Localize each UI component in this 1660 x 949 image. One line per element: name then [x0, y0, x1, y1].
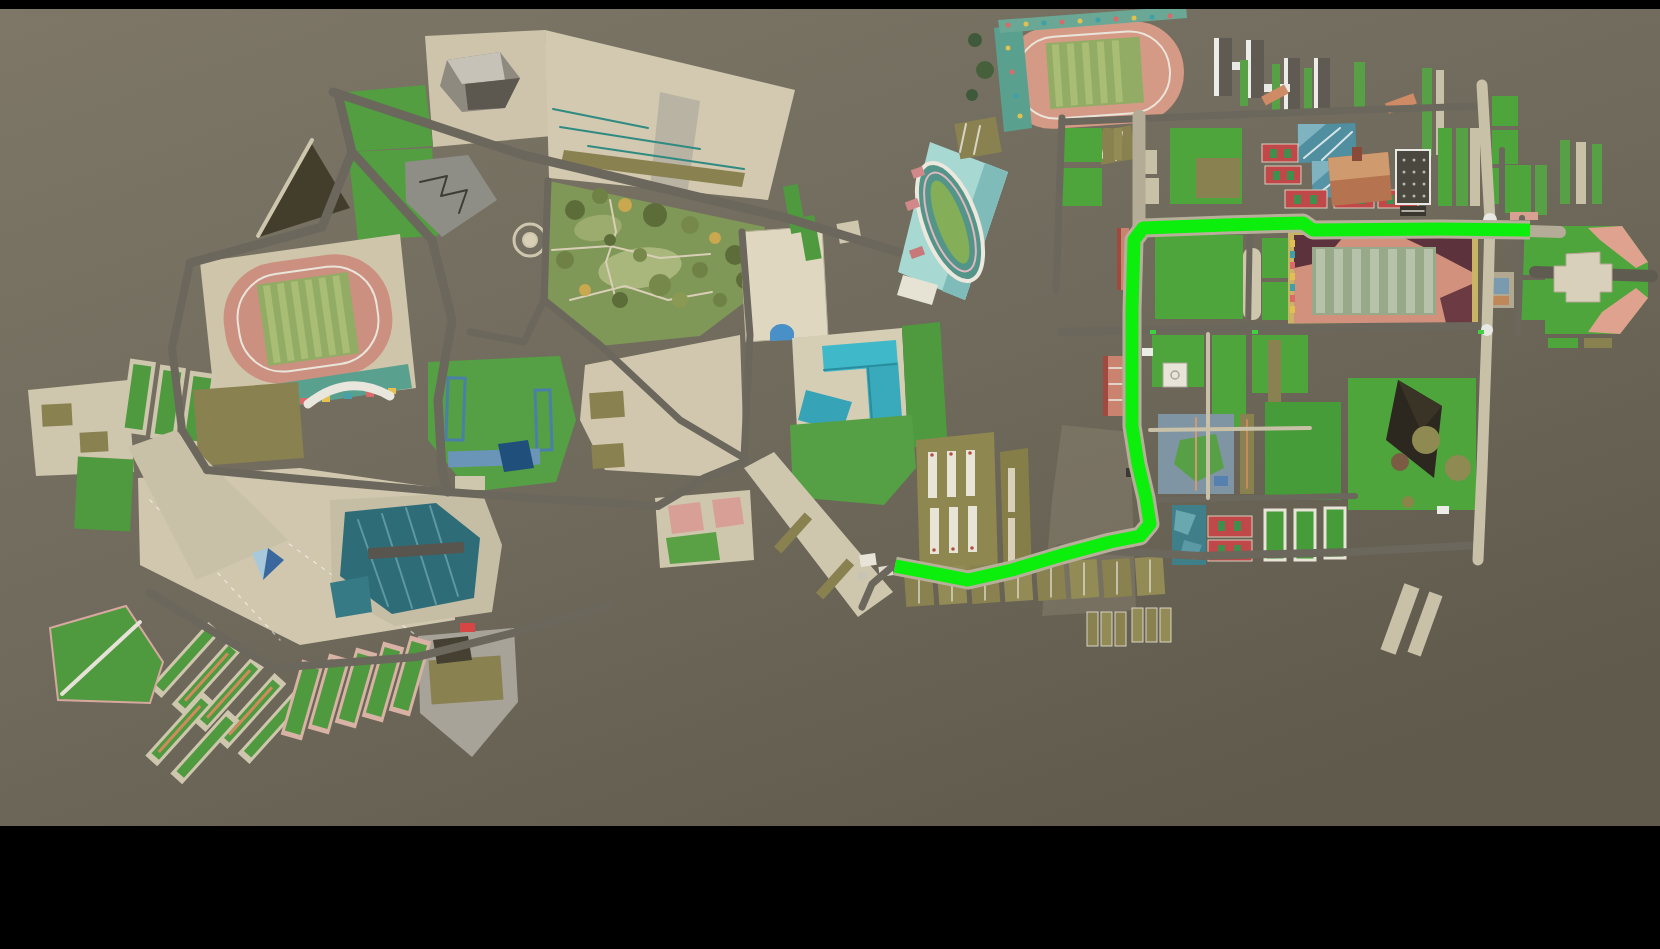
barracks-roof — [928, 452, 937, 498]
red-court — [1285, 190, 1327, 208]
roof-dot — [930, 453, 934, 457]
court-key — [1310, 195, 1317, 204]
khaki-bit — [1584, 338, 1612, 348]
barracks-roof — [966, 450, 975, 496]
tree — [556, 251, 574, 269]
tree — [1445, 455, 1471, 481]
stand-seat — [1078, 19, 1083, 24]
field-stripe — [1334, 249, 1343, 313]
khaki-field — [193, 382, 304, 466]
lawn-block — [1155, 235, 1243, 319]
white-pavilion — [1163, 363, 1187, 387]
lawn — [1062, 168, 1102, 206]
lawn-strip — [1560, 140, 1570, 204]
lawn-strip — [1240, 60, 1248, 106]
dorm-slab — [1316, 58, 1330, 110]
tree — [713, 293, 727, 307]
red-roof-edge — [1103, 356, 1108, 416]
lawn-strip — [1354, 62, 1365, 112]
parking-dot — [1403, 195, 1406, 198]
walk-strip — [1470, 128, 1480, 206]
lawn-bit — [1548, 338, 1578, 348]
parking-dot — [1413, 195, 1416, 198]
lawn-block — [1262, 238, 1290, 278]
roof-dot — [951, 547, 955, 551]
khaki-strip — [1115, 612, 1126, 646]
tree — [709, 232, 721, 244]
stand-seat — [1042, 21, 1047, 26]
stand-seat — [1132, 16, 1137, 21]
barracks-roof — [968, 506, 977, 552]
lawn-block — [1262, 282, 1290, 320]
bleacher — [1290, 295, 1295, 302]
khaki-court — [591, 443, 625, 469]
roof-dot — [949, 452, 953, 456]
tree — [592, 188, 608, 204]
dorm-edge — [1214, 38, 1219, 96]
gym-annex — [330, 576, 372, 618]
tree — [565, 200, 585, 220]
lawn-strip — [1438, 128, 1452, 206]
court-key — [1284, 149, 1291, 158]
big-lawn — [1265, 402, 1341, 500]
barracks-roof — [930, 508, 939, 554]
red-roof-edge — [1117, 228, 1121, 290]
stand-seat — [1006, 46, 1011, 51]
tree — [968, 33, 982, 47]
tree — [604, 234, 616, 246]
field-stripe — [1370, 249, 1379, 313]
stand-seat — [1018, 114, 1023, 119]
tree — [579, 284, 591, 296]
parking-dot — [1403, 171, 1406, 174]
bleacher — [1290, 240, 1295, 247]
pink-stand — [668, 502, 704, 534]
bleacher — [1290, 262, 1295, 269]
tree — [692, 262, 708, 278]
road — [1529, 231, 1560, 232]
parking-dot — [1423, 183, 1426, 186]
roof-dot — [968, 451, 972, 455]
bleacher — [1290, 273, 1295, 280]
parking-dot — [1423, 159, 1426, 162]
court-key — [1287, 171, 1294, 180]
lawn — [1492, 96, 1518, 126]
tree — [966, 89, 978, 101]
stand-seat — [344, 393, 352, 399]
tree — [633, 248, 647, 262]
parking-dot — [1413, 159, 1416, 162]
crossing-marker — [1150, 330, 1156, 334]
lawn-cell — [1212, 335, 1246, 427]
lawn-strip — [1456, 128, 1468, 206]
garden-pool — [1214, 476, 1228, 486]
stand-seat — [1014, 94, 1019, 99]
field-stripe — [1388, 249, 1397, 313]
gate-building — [859, 553, 877, 567]
khaki-court — [589, 391, 625, 419]
field-stripe — [1406, 249, 1415, 313]
parking-dot — [1423, 195, 1426, 198]
tree — [681, 216, 699, 234]
lawn-strip — [1422, 68, 1432, 156]
khaki-strip — [1087, 612, 1098, 646]
barracks-roof — [947, 451, 956, 497]
khaki-strip — [1132, 608, 1143, 642]
court-key — [1234, 521, 1241, 531]
tree — [612, 292, 628, 308]
lawn — [1503, 165, 1531, 213]
road-sign — [1437, 506, 1449, 514]
tree — [1412, 426, 1440, 454]
stand-seat — [1006, 23, 1011, 28]
barracks-roof — [1008, 468, 1015, 512]
stand-seat — [1010, 70, 1015, 75]
parking-dot — [1413, 183, 1416, 186]
walk-strip — [1576, 142, 1586, 204]
bleacher — [1290, 284, 1295, 291]
tree — [649, 274, 671, 296]
stand-seat — [1150, 15, 1155, 20]
red-court — [1265, 166, 1301, 184]
khaki-court — [79, 431, 108, 452]
red-court — [1262, 144, 1298, 162]
road — [1150, 496, 1355, 500]
parking-dot — [1403, 183, 1406, 186]
dorm-edge — [1314, 58, 1318, 110]
khaki-strip — [1103, 128, 1111, 160]
bleacher — [1290, 251, 1295, 258]
roof-dot — [970, 546, 974, 550]
stand-seat — [1060, 20, 1065, 25]
stand-seat — [1024, 22, 1029, 27]
letterbox-bottom — [0, 826, 1660, 949]
grandstand-pad — [455, 476, 485, 490]
court-key — [1273, 171, 1280, 180]
stand-seat — [1168, 14, 1173, 19]
khaki-strip — [1146, 608, 1157, 642]
tree — [672, 292, 688, 308]
gate-building — [857, 571, 868, 580]
amphitheater — [523, 233, 537, 247]
khaki-strip — [1101, 612, 1112, 646]
map-viewport[interactable] — [0, 0, 1660, 949]
tree — [976, 61, 994, 79]
campus-map-canvas[interactable] — [0, 0, 1660, 949]
path — [1150, 428, 1310, 430]
lawn-strip — [1272, 64, 1280, 110]
red-marker — [460, 623, 475, 632]
crossing-marker — [1478, 330, 1484, 334]
khaki-court — [41, 403, 72, 427]
court-key — [1270, 149, 1277, 158]
khaki-strip — [1160, 608, 1171, 642]
letterbox-top — [0, 0, 1660, 9]
grandstand-roof — [498, 440, 534, 472]
lawn-strip — [1592, 144, 1602, 204]
road — [1248, 218, 1250, 330]
khaki-strip — [1114, 128, 1122, 160]
tree — [1402, 496, 1414, 508]
court-key — [1294, 195, 1301, 204]
lawn-strip — [1535, 165, 1547, 215]
lawn-strip — [1304, 68, 1312, 112]
parking-dot — [1413, 171, 1416, 174]
road-sign — [1142, 348, 1153, 356]
field-stripe — [1424, 249, 1433, 313]
stand-seat — [1114, 17, 1119, 22]
barracks-roof — [1008, 518, 1015, 562]
parking-dot — [1403, 159, 1406, 162]
barracks-roof — [949, 507, 958, 553]
stand-seat — [1096, 18, 1101, 23]
crossing-marker — [1252, 330, 1258, 334]
lawn — [1062, 128, 1102, 162]
parking-dot — [1423, 171, 1426, 174]
field-stripe — [1316, 249, 1325, 313]
tree — [618, 198, 632, 212]
red-court — [1208, 516, 1252, 537]
bleacher — [1290, 306, 1295, 313]
chimney — [1352, 147, 1362, 161]
lawn-square — [74, 457, 134, 532]
tree — [643, 203, 667, 227]
tree — [1391, 453, 1409, 471]
pink-stand — [712, 497, 744, 528]
field-stripe — [1352, 249, 1361, 313]
roof-dot — [932, 548, 936, 552]
court-key — [1218, 521, 1225, 531]
khaki-field — [1196, 158, 1240, 198]
